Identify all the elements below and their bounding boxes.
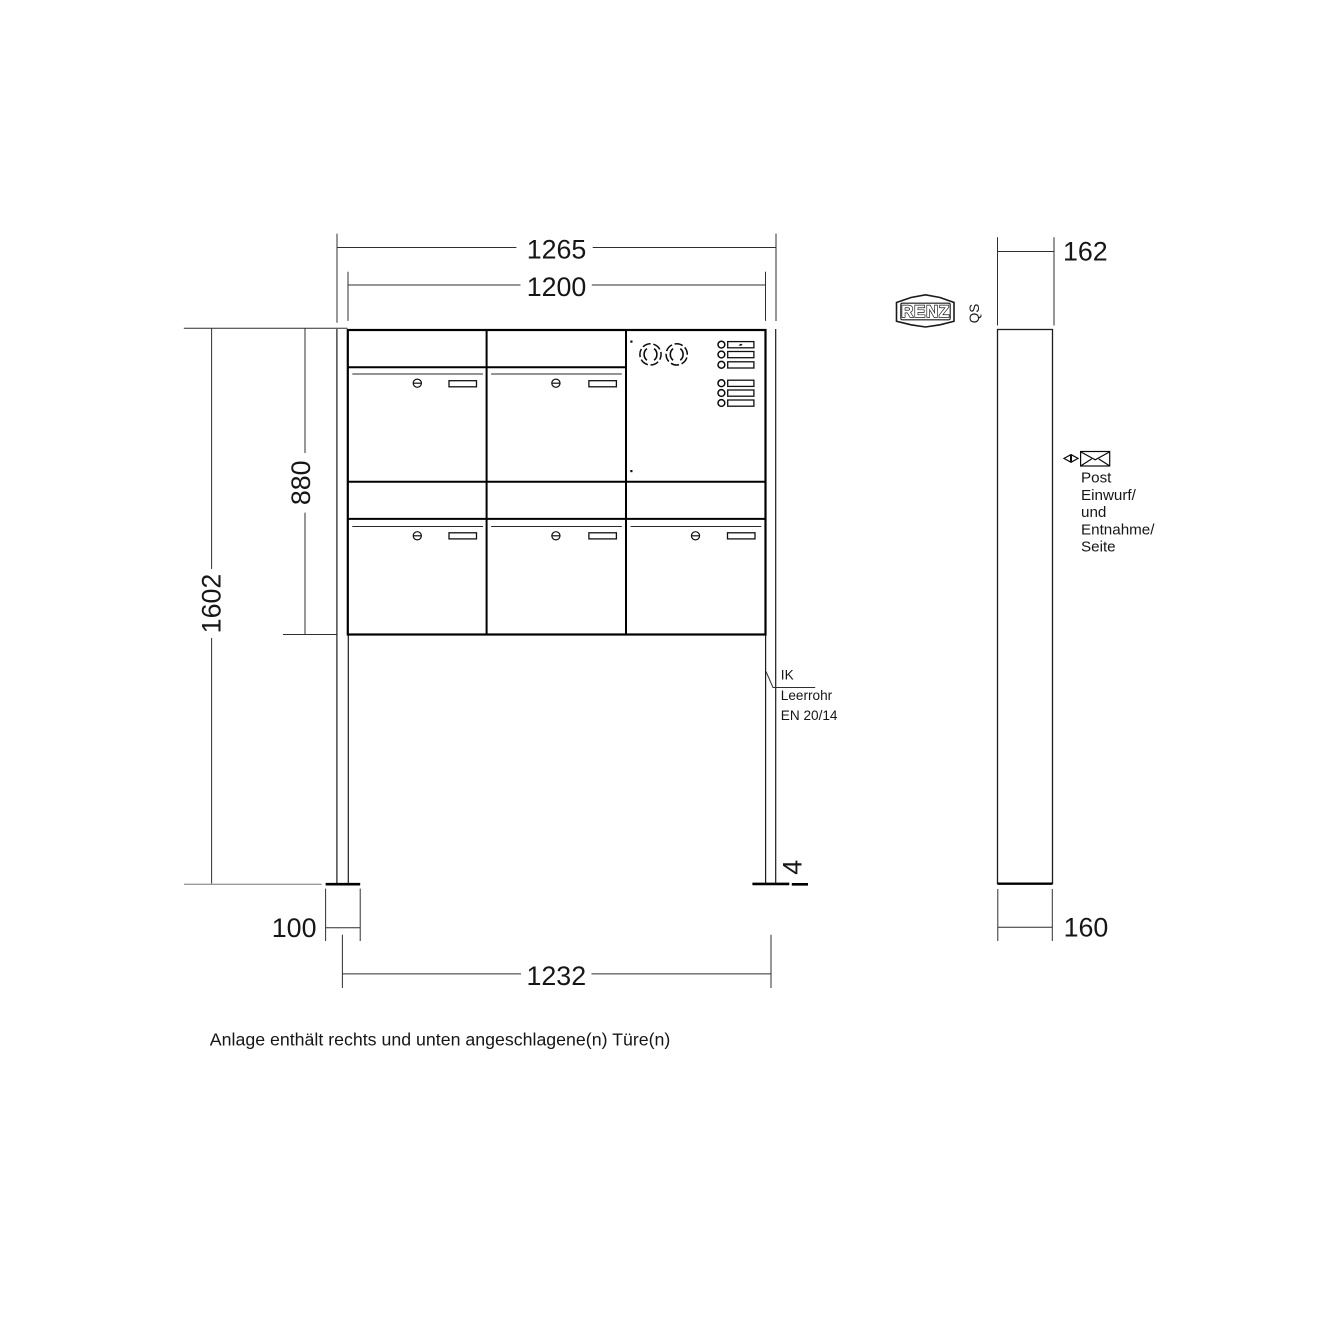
svg-text:QS: QS [967, 304, 982, 324]
svg-text:Anlage enthält rechts und unte: Anlage enthält rechts und unten angeschl… [210, 1030, 671, 1050]
svg-text:162: 162 [1063, 237, 1108, 267]
svg-text:Entnahme/: Entnahme/ [1081, 521, 1155, 538]
svg-text:1200: 1200 [527, 272, 587, 302]
svg-text:160: 160 [1064, 912, 1109, 942]
svg-text:880: 880 [286, 460, 316, 505]
svg-text:1232: 1232 [526, 961, 586, 991]
svg-text:RENZ: RENZ [901, 302, 950, 321]
svg-text:4: 4 [777, 860, 807, 875]
svg-text:1602: 1602 [197, 574, 227, 634]
svg-text:100: 100 [272, 913, 317, 943]
svg-text:und: und [1081, 504, 1106, 521]
svg-text:1265: 1265 [527, 235, 587, 265]
svg-text:Seite: Seite [1081, 539, 1116, 556]
svg-text:EN 20/14: EN 20/14 [781, 708, 838, 723]
svg-text:Post: Post [1081, 470, 1112, 487]
svg-text:IK: IK [781, 667, 794, 682]
svg-text:Leerrohr: Leerrohr [781, 688, 833, 703]
svg-text:Einwurf/: Einwurf/ [1081, 487, 1137, 504]
